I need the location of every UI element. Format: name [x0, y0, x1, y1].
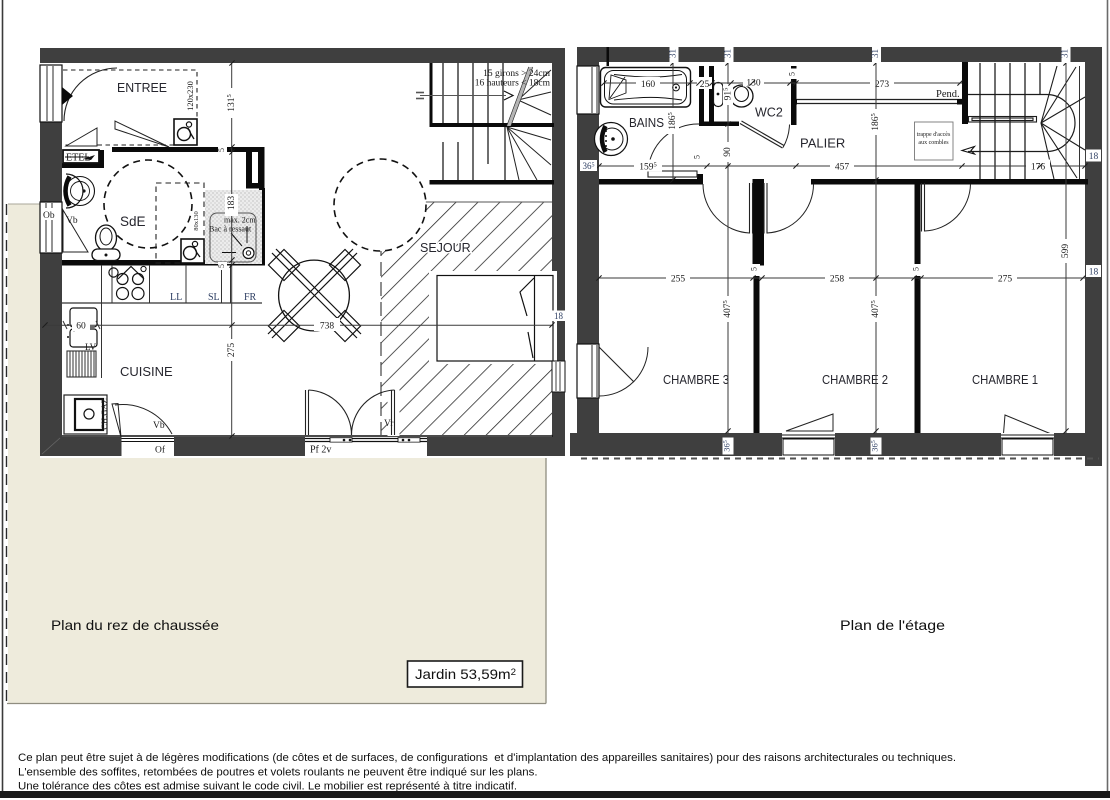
- svg-text:SL: SL: [208, 292, 220, 303]
- svg-text:31: 31: [870, 49, 880, 58]
- svg-text:31: 31: [723, 49, 733, 58]
- svg-text:Ce plan peut être sujet à de l: Ce plan peut être sujet à de légères mod…: [18, 752, 956, 764]
- svg-text:5: 5: [912, 267, 921, 271]
- svg-text:CHAMBRE 3: CHAMBRE 3: [663, 372, 729, 387]
- svg-text:WC2: WC2: [755, 106, 783, 120]
- svg-text:18: 18: [1089, 268, 1099, 278]
- svg-text:CH.GAZ: CH.GAZ: [99, 398, 109, 429]
- svg-text:5: 5: [217, 264, 226, 268]
- svg-text:CHAMBRE 2: CHAMBRE 2: [822, 372, 888, 387]
- svg-text:FR: FR: [244, 292, 257, 303]
- svg-text:Plan de l'étage: Plan de l'étage: [840, 617, 945, 633]
- svg-text:5: 5: [788, 72, 797, 76]
- svg-text:Une tolérance des côtes est ad: Une tolérance des côtes est admise suiva…: [18, 781, 517, 793]
- svg-text:160: 160: [641, 80, 656, 90]
- svg-text:738: 738: [320, 322, 335, 332]
- svg-text:Ob: Ob: [43, 211, 55, 221]
- svg-text:31: 31: [1060, 49, 1070, 58]
- svg-text:CHAMBRE 1: CHAMBRE 1: [972, 372, 1038, 387]
- svg-text:BAINS: BAINS: [629, 116, 664, 130]
- svg-text:275: 275: [998, 275, 1013, 285]
- svg-text:31: 31: [668, 49, 678, 58]
- svg-text:90: 90: [723, 147, 733, 157]
- svg-text:max. 2cm: max. 2cm: [224, 216, 256, 225]
- svg-text:Pend.: Pend.: [936, 89, 960, 100]
- svg-text:PALIER: PALIER: [800, 136, 845, 151]
- svg-text:Pf 2v: Pf 2v: [310, 445, 331, 456]
- svg-text:80x130: 80x130: [193, 211, 200, 231]
- svg-text:Vb: Vb: [66, 216, 78, 226]
- svg-text:5: 5: [750, 267, 759, 271]
- svg-text:5: 5: [693, 155, 702, 159]
- svg-text:275: 275: [227, 343, 237, 358]
- svg-text:L'ensemble des soffites, retom: L'ensemble des soffites, retombées de po…: [18, 767, 538, 779]
- svg-text:120x230: 120x230: [185, 81, 195, 111]
- svg-text:18: 18: [1089, 152, 1099, 162]
- svg-text:25: 25: [700, 80, 710, 90]
- svg-text:Vr: Vr: [384, 419, 394, 429]
- svg-text:258: 258: [830, 275, 845, 285]
- svg-text:CUISINE: CUISINE: [120, 364, 173, 379]
- svg-text:Bac à ressaut: Bac à ressaut: [209, 225, 252, 234]
- svg-text:SEJOUR: SEJOUR: [420, 241, 471, 255]
- svg-text:255: 255: [671, 275, 686, 285]
- svg-text:Plan du rez de chaussée: Plan du rez de chaussée: [51, 617, 219, 633]
- svg-text:LL: LL: [170, 292, 182, 303]
- svg-text:15 girons > 24cm: 15 girons > 24cm: [483, 69, 550, 79]
- svg-text:16 hauteurs < 18cm: 16 hauteurs < 18cm: [475, 79, 551, 89]
- svg-text:599: 599: [1061, 244, 1071, 259]
- svg-text:60: 60: [76, 322, 86, 332]
- svg-text:Of: Of: [155, 445, 166, 456]
- svg-text:ENTREE: ENTREE: [117, 80, 167, 95]
- svg-text:trappe d'accès: trappe d'accès: [917, 132, 951, 138]
- svg-text:130: 130: [746, 79, 761, 89]
- svg-text:18: 18: [554, 311, 564, 321]
- svg-text:aux combles: aux combles: [918, 140, 949, 146]
- svg-text:SdE: SdE: [120, 214, 146, 229]
- svg-text:457: 457: [835, 163, 850, 173]
- svg-text:Jardin 53,59m2: Jardin 53,59m2: [415, 666, 516, 682]
- svg-text:183: 183: [227, 196, 237, 211]
- svg-text:Vb: Vb: [153, 421, 165, 431]
- svg-text:273: 273: [875, 80, 890, 90]
- svg-text:5: 5: [217, 148, 226, 152]
